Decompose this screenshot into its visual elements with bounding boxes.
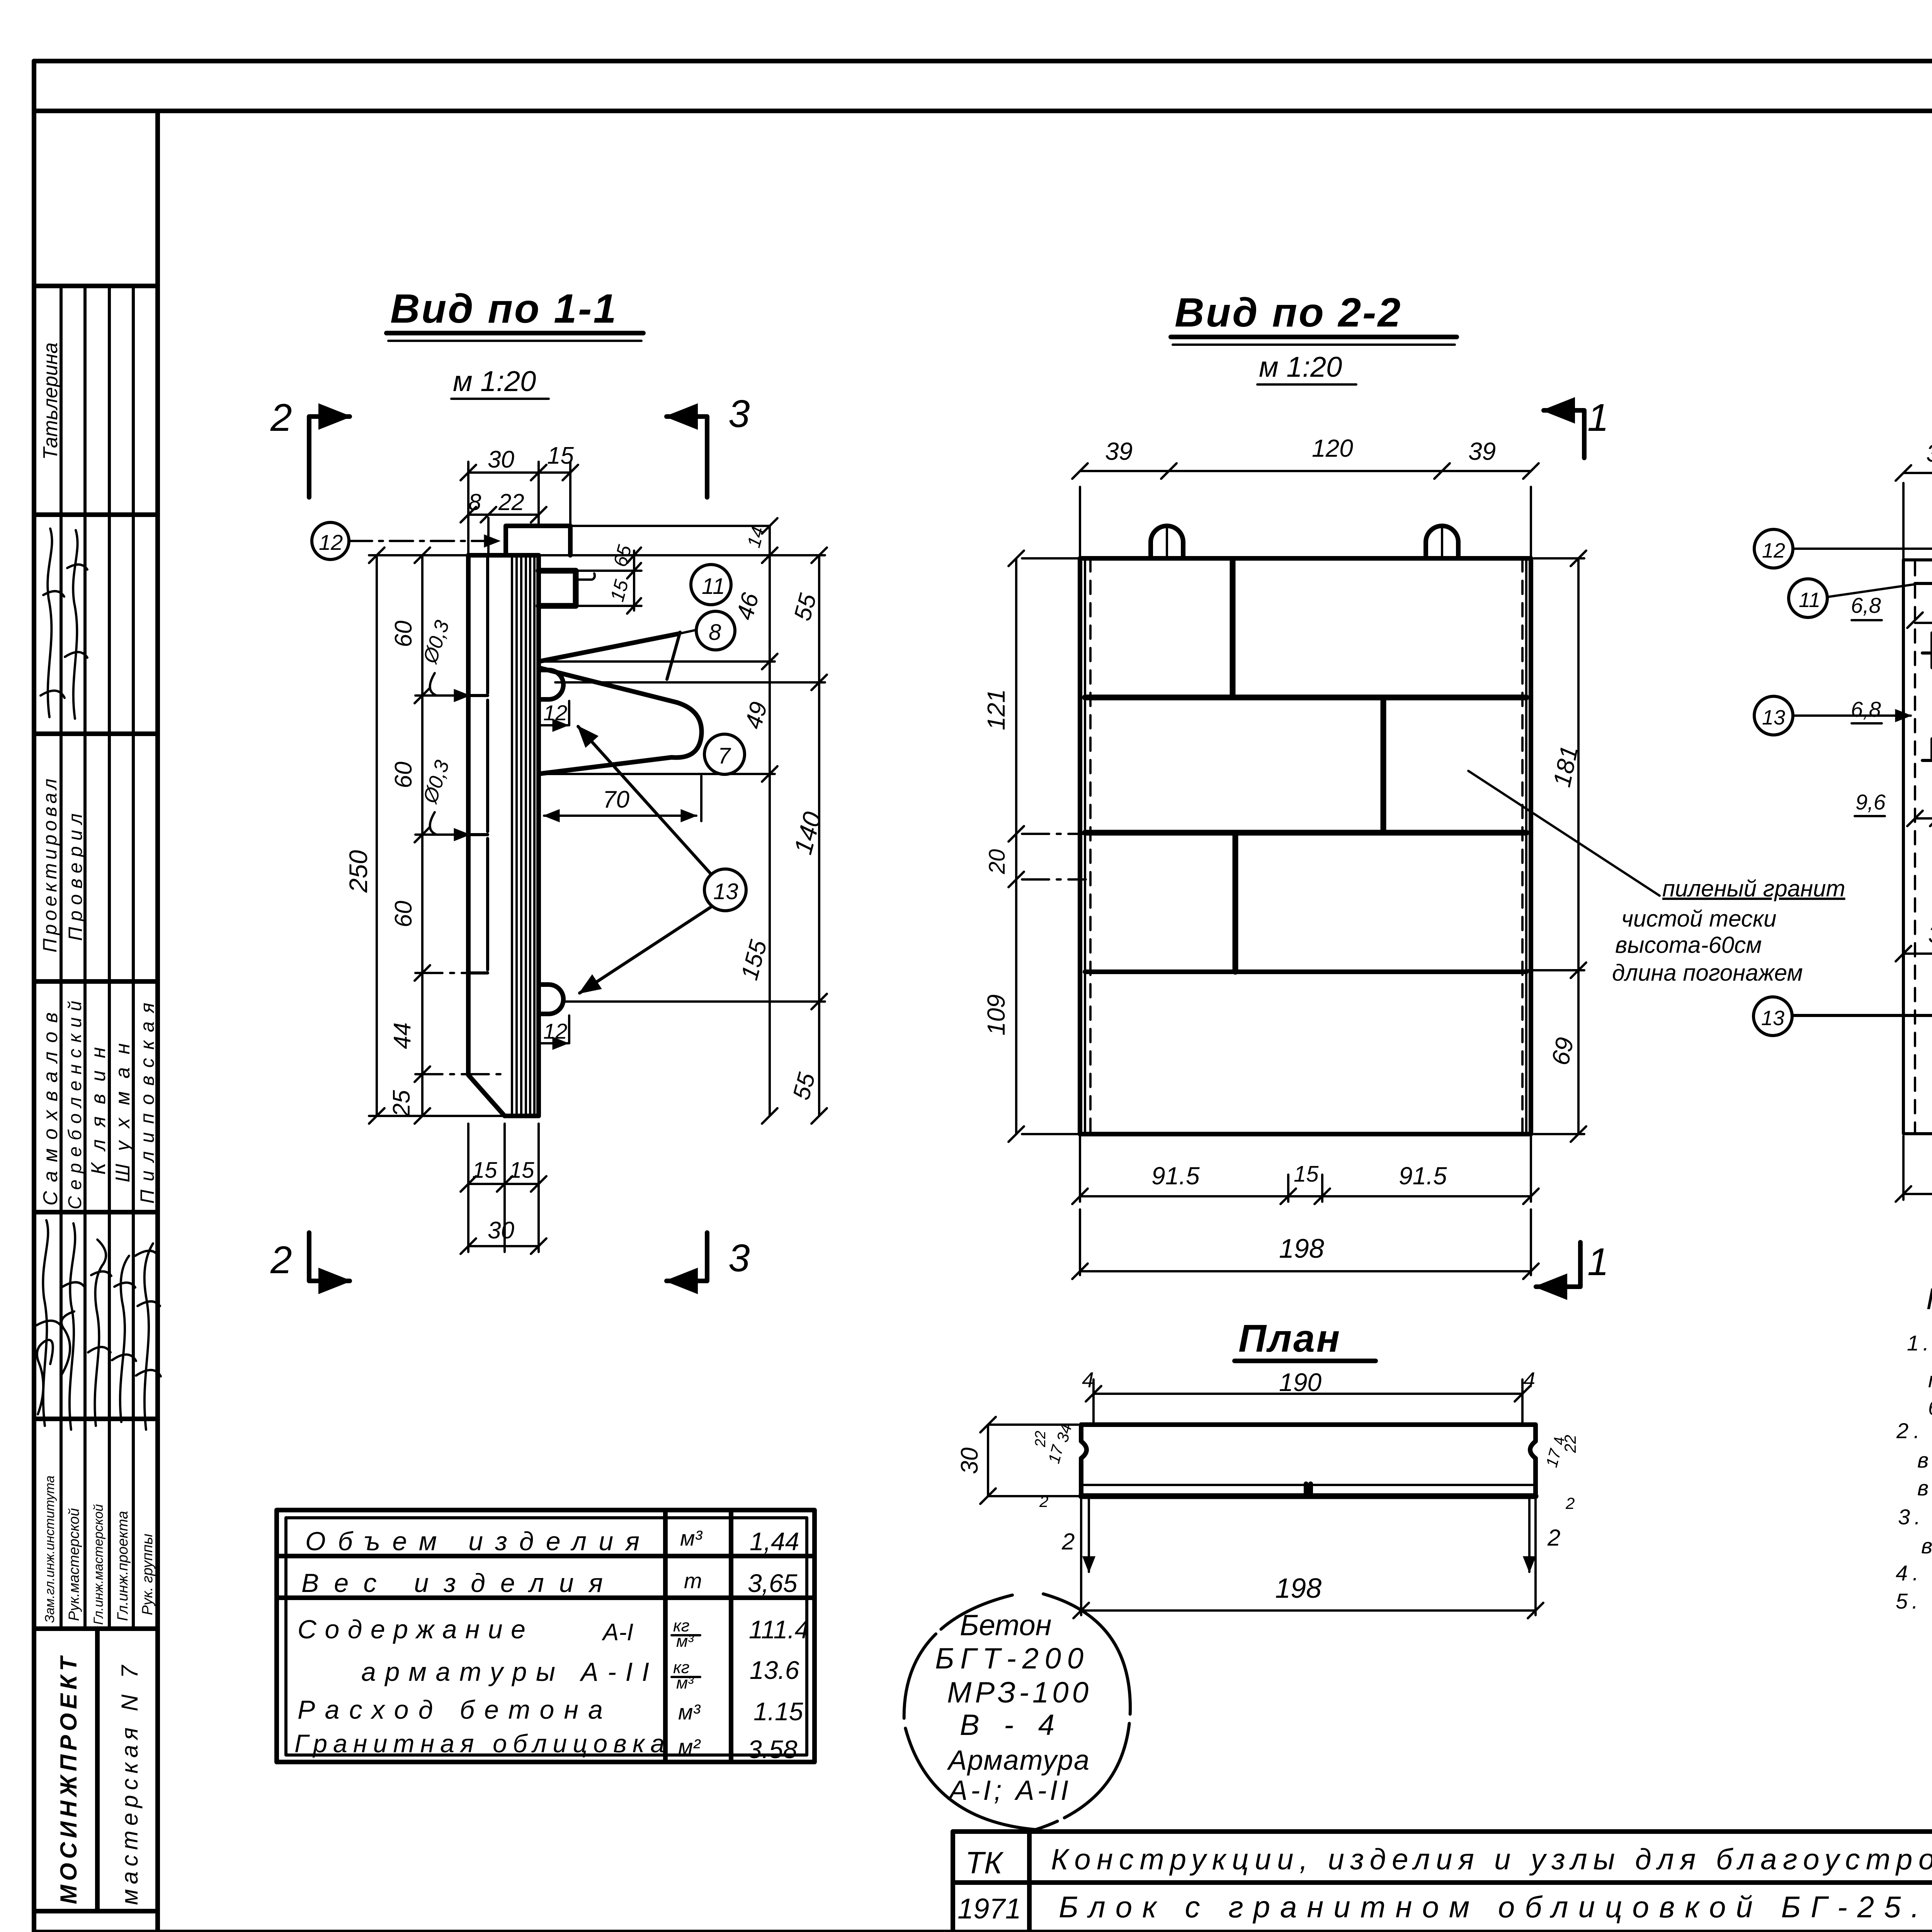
svg-text:11: 11	[702, 574, 725, 599]
svg-text:70: 70	[603, 786, 629, 813]
svg-text:15: 15	[509, 1158, 534, 1183]
svg-text:30: 30	[488, 446, 514, 473]
svg-text:1: 1	[1587, 396, 1609, 439]
svg-text:бетона.: бетона.	[1928, 1395, 1932, 1420]
svg-text:120: 120	[1312, 434, 1353, 462]
svg-text:м 1:20: м 1:20	[453, 365, 536, 397]
svg-text:6,8: 6,8	[1851, 593, 1881, 617]
svg-text:м³: м³	[678, 1700, 701, 1724]
svg-text:8: 8	[709, 620, 721, 645]
svg-text:том, с указанием техническо: том, с указанием технической характерист…	[1928, 1367, 1932, 1392]
svg-text:11: 11	[1799, 588, 1820, 612]
svg-text:2: 2	[1061, 1529, 1075, 1554]
svg-text:22: 22	[498, 489, 524, 515]
svg-text:91.5: 91.5	[1399, 1162, 1447, 1190]
svg-text:длина погонажем: длина погонажем	[1612, 960, 1803, 986]
svg-text:91.5: 91.5	[1151, 1162, 1200, 1190]
svg-text:2: 2	[1565, 1494, 1575, 1512]
svg-text:пиленый гранит: пиленый гранит	[1662, 876, 1845, 901]
svg-text:121: 121	[982, 689, 1010, 730]
svg-text:4. Цемент должен применятьс: 4. Цемент должен применяться не ниже мар…	[1896, 1561, 1932, 1585]
svg-text:В - 4: В - 4	[960, 1709, 1054, 1742]
svg-text:25: 25	[388, 1090, 415, 1117]
svg-text:Татьлерина: Татьлерина	[39, 342, 62, 460]
svg-text:чистой тески: чистой тески	[1621, 906, 1777, 932]
svg-text:13: 13	[713, 879, 738, 904]
svg-text:198: 198	[1275, 1573, 1321, 1604]
svg-text:Гл.инж.мастерской: Гл.инж.мастерской	[91, 1504, 106, 1625]
svg-text:3.58: 3.58	[748, 1735, 798, 1764]
svg-text:Бетон: Бетон	[960, 1609, 1051, 1642]
svg-text:т: т	[684, 1568, 702, 1593]
svg-text:3. Защитный слой , указанный: 3. Защитный слой , указанный на чертеже …	[1898, 1505, 1932, 1529]
svg-text:20: 20	[985, 849, 1010, 874]
svg-text:30: 30	[956, 1447, 983, 1474]
svg-text:15: 15	[1294, 1162, 1319, 1187]
svg-text:12: 12	[319, 530, 343, 554]
svg-text:выдержан с допуском ±5 мм.: выдержан с допуском ±5 мм.	[1921, 1534, 1932, 1558]
svg-text:м²: м²	[678, 1735, 701, 1759]
svg-text:30: 30	[488, 1217, 514, 1244]
svg-text:60: 60	[390, 901, 417, 927]
svg-text:Зам.гл.инж.института: Зам.гл.инж.института	[43, 1476, 57, 1623]
svg-text:39: 39	[1468, 437, 1496, 465]
svg-text:3,65: 3,65	[748, 1569, 798, 1597]
svg-text:План: План	[1238, 1317, 1341, 1360]
svg-text:22: 22	[1032, 1431, 1049, 1447]
svg-text:5. Химические добавки NaCl: 5. Химические добавки NaCl и CaCl₂ в бет…	[1896, 1589, 1932, 1613]
svg-text:7: 7	[718, 743, 731, 769]
svg-text:3: 3	[728, 1236, 750, 1280]
svg-text:39: 39	[1926, 439, 1932, 467]
svg-text:ТК: ТК	[965, 1845, 1004, 1880]
svg-text:190: 190	[1279, 1368, 1321, 1396]
svg-text:высота-60см: высота-60см	[1615, 932, 1762, 958]
svg-text:Арматура: Арматура	[947, 1745, 1089, 1776]
svg-text:3: 3	[728, 392, 750, 435]
svg-text:9,6: 9,6	[1855, 790, 1886, 814]
svg-text:39: 39	[1928, 920, 1932, 948]
svg-text:Вид по 1-1: Вид по 1-1	[390, 286, 617, 332]
svg-text:6,8: 6,8	[1851, 697, 1881, 721]
svg-text:Вид по 2-2: Вид по 2-2	[1175, 290, 1402, 335]
svg-text:1: 1	[1587, 1240, 1609, 1284]
svg-text:2: 2	[1547, 1525, 1560, 1551]
svg-text:А-I; А-II: А-I; А-II	[947, 1775, 1068, 1806]
svg-text:4: 4	[1082, 1367, 1094, 1392]
svg-text:39: 39	[1105, 437, 1133, 465]
svg-text:Рук. группы: Рук. группы	[139, 1534, 156, 1615]
svg-text:60: 60	[390, 621, 417, 647]
svg-text:Рук.мастерской: Рук.мастерской	[66, 1508, 82, 1621]
svg-text:2: 2	[270, 396, 292, 439]
svg-text:15: 15	[472, 1158, 497, 1183]
svg-text:109: 109	[982, 994, 1010, 1036]
svg-text:198: 198	[1279, 1233, 1324, 1264]
svg-text:м 1:20: м 1:20	[1259, 351, 1342, 383]
svg-text:69: 69	[1546, 1035, 1579, 1068]
svg-text:Примечания·: Примечания·	[1926, 1282, 1932, 1316]
svg-text:250: 250	[344, 850, 372, 893]
svg-text:1.15: 1.15	[753, 1697, 803, 1726]
svg-text:2: 2	[1039, 1492, 1048, 1510]
svg-text:111.4: 111.4	[749, 1615, 809, 1644]
svg-text:12: 12	[543, 701, 567, 725]
svg-text:1,44: 1,44	[750, 1527, 799, 1556]
svg-text:А-I: А-I	[601, 1619, 633, 1646]
svg-text:Гл.инж.проекта: Гл.инж.проекта	[115, 1511, 131, 1621]
svg-text:12: 12	[1762, 539, 1785, 562]
svg-text:60: 60	[390, 762, 417, 788]
svg-text:13.6: 13.6	[750, 1656, 799, 1684]
svg-text:13: 13	[1762, 706, 1785, 729]
svg-text:2. Производство работ по из: 2. Производство работ по изготовлению бл…	[1896, 1418, 1932, 1443]
svg-text:13: 13	[1761, 1007, 1784, 1030]
svg-text:2: 2	[270, 1238, 292, 1282]
svg-text:44: 44	[389, 1022, 416, 1049]
svg-text:м³: м³	[680, 1526, 702, 1550]
svg-text:1971: 1971	[957, 1893, 1021, 1925]
svg-text:12: 12	[543, 1019, 567, 1043]
svg-text:22: 22	[1561, 1435, 1579, 1453]
